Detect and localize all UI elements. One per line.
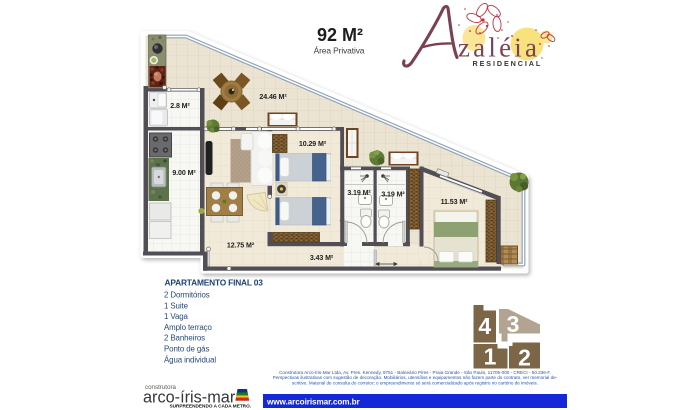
svg-text:1 Suite: 1 Suite — [164, 301, 189, 310]
svg-text:www.arcoirismar.com.br: www.arcoirismar.com.br — [266, 397, 361, 406]
svg-text:Construtora Arco-Íris-Mar Ltda: Construtora Arco-Íris-Mar Ltda, Av. Pres… — [279, 369, 551, 375]
svg-text:2.8 M²: 2.8 M² — [170, 102, 190, 110]
svg-text:1 Vaga: 1 Vaga — [164, 312, 189, 321]
svg-text:4: 4 — [478, 313, 491, 339]
svg-text:Ponto de gás: Ponto de gás — [164, 345, 209, 354]
svg-text:2 Dormitórios: 2 Dormitórios — [164, 291, 210, 300]
svg-text:24.46 M²: 24.46 M² — [259, 93, 287, 101]
svg-text:APARTAMENTO FINAL 03: APARTAMENTO FINAL 03 — [165, 278, 264, 288]
svg-text:zaléia: zaléia — [458, 33, 540, 63]
svg-text:3.19 M²: 3.19 M² — [381, 191, 405, 199]
svg-text:11.53 M²: 11.53 M² — [441, 198, 469, 206]
svg-text:92 M²: 92 M² — [317, 25, 363, 45]
svg-text:3: 3 — [507, 311, 520, 337]
svg-text:10.29 M²: 10.29 M² — [299, 140, 327, 148]
svg-text:Amplo terraço: Amplo terraço — [164, 323, 213, 332]
svg-text:SURPREENDENDO A CADA METRO.: SURPREENDENDO A CADA METRO. — [170, 404, 252, 409]
svg-text:9.00 M²: 9.00 M² — [172, 169, 196, 177]
svg-text:12.75 M²: 12.75 M² — [227, 242, 255, 250]
svg-text:RESIDENCIAL: RESIDENCIAL — [473, 59, 543, 68]
svg-text:Água individual: Água individual — [164, 355, 216, 364]
svg-text:scritivo. Material de consult: scritivo. Material de consulta do corret… — [292, 380, 538, 385]
svg-text:3.43 M²: 3.43 M² — [310, 254, 334, 262]
svg-text:2: 2 — [518, 345, 531, 371]
svg-text:Área Privativa: Área Privativa — [314, 46, 365, 56]
svg-text:3.19 M²: 3.19 M² — [347, 189, 371, 197]
svg-text:1: 1 — [484, 344, 497, 370]
svg-text:2 Banheiros: 2 Banheiros — [164, 334, 205, 343]
